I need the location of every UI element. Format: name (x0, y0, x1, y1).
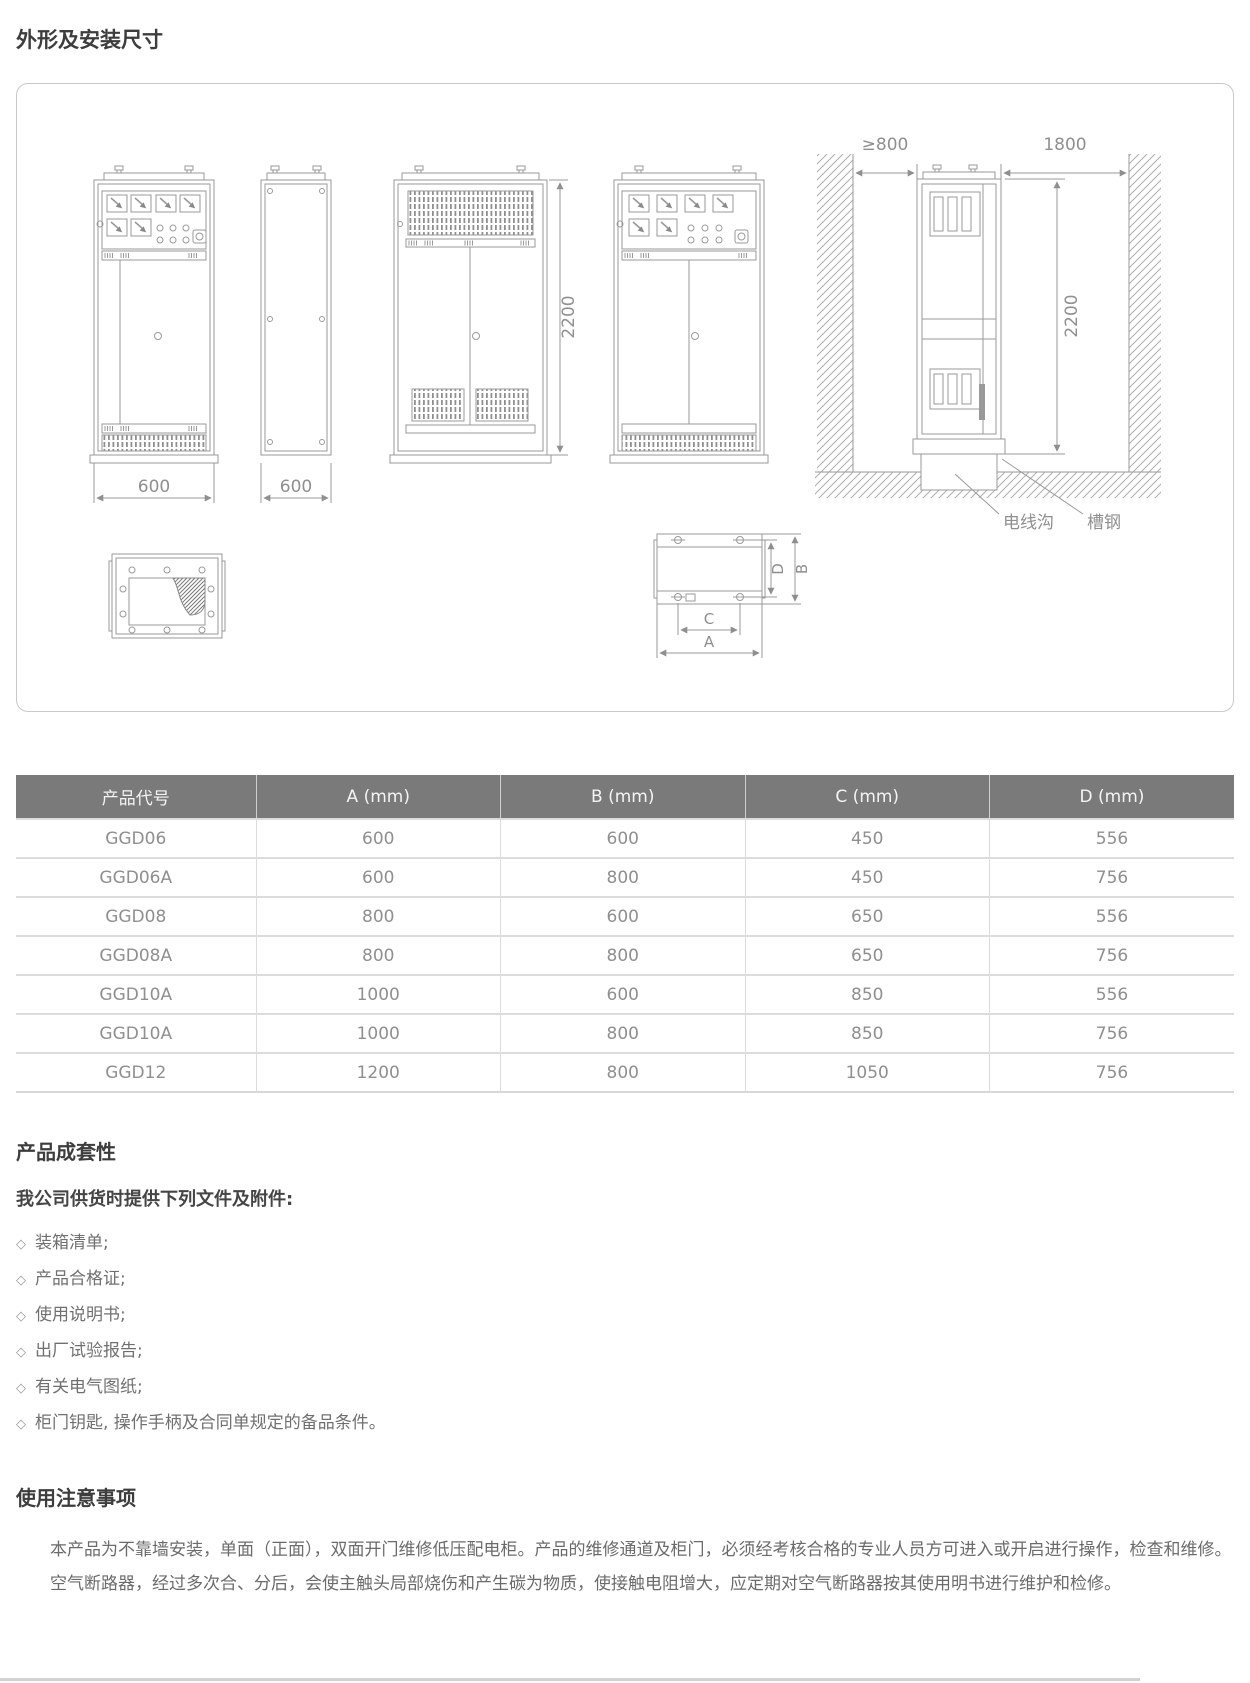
cabinet-front-view (90, 166, 218, 503)
left-wall-hatch (817, 154, 853, 472)
door-handle (473, 333, 480, 340)
table-cell: 450 (745, 858, 990, 897)
table-cell: GGD06A (16, 858, 256, 897)
list-item-text: 柜门钥匙, 操作手柄及合同单规定的备品条件。 (35, 1413, 386, 1433)
list-item: ◇产品合格证; (16, 1261, 1234, 1297)
dim-label-side-depth: 600 (280, 477, 312, 497)
label-channel-steel: 槽钢 (1087, 513, 1121, 533)
table-cell: 800 (256, 936, 501, 975)
table-header-row: 产品代号 A (mm) B (mm) C (mm) D (mm) (16, 775, 1234, 819)
dim-label-rear-clearance: 1800 (1043, 135, 1086, 155)
table-cell: 650 (745, 936, 990, 975)
table-cell: 800 (501, 1053, 746, 1092)
diamond-bullet-icon: ◇ (16, 1417, 26, 1432)
list-item: ◇有关电气图纸; (16, 1369, 1234, 1405)
table-cell: GGD10A (16, 975, 256, 1014)
table-cell: 1200 (256, 1053, 501, 1092)
dim-label-c: C (704, 610, 714, 628)
note-paragraph: 空气断路器，经过多次合、分后，会使主触头局部烧伤和产生碳为物质，使接触电阻增大，… (16, 1567, 1234, 1601)
note-paragraph: 本产品为不靠墙安装，单面（正面），双面开门维修低压配电柜。产品的维修通道及柜门，… (16, 1533, 1234, 1567)
table-cell: 800 (256, 897, 501, 936)
dim-label-b: B (793, 564, 811, 574)
top-view (109, 554, 225, 638)
usage-notes-section-title: 使用注意事项 (16, 1485, 1234, 1511)
diamond-bullet-icon: ◇ (16, 1381, 26, 1396)
spec-table: 产品代号 A (mm) B (mm) C (mm) D (mm) GGD0660… (16, 775, 1234, 1093)
dimension-drawing-panel: 600 600 2200 ≥800 1800 2200 电线沟 槽钢 D B C… (16, 83, 1234, 712)
list-item-text: 出厂试验报告; (35, 1341, 143, 1361)
table-row: GGD08A800800650756 (16, 936, 1234, 975)
diamond-bullet-icon: ◇ (16, 1237, 26, 1252)
table-cell: 1000 (256, 975, 501, 1014)
table-cell: GGD08 (16, 897, 256, 936)
table-cell: 450 (745, 819, 990, 858)
table-cell: 800 (501, 1014, 746, 1053)
table-cell: 600 (256, 819, 501, 858)
diamond-bullet-icon: ◇ (16, 1273, 26, 1288)
page-title: 外形及安装尺寸 (16, 28, 1234, 52)
cabinet-front-view-2 (610, 166, 768, 463)
table-cell: 800 (501, 936, 746, 975)
dim-label-d: D (769, 563, 787, 575)
table-cell: 556 (990, 897, 1235, 936)
right-wall-hatch (1129, 154, 1161, 472)
bottom-divider (0, 1678, 1140, 1681)
list-item-text: 产品合格证; (35, 1269, 126, 1289)
table-cell: 850 (745, 1014, 990, 1053)
cabinet-double-door-view (390, 166, 568, 463)
list-item: ◇装箱清单; (16, 1225, 1234, 1261)
page: 外形及安装尺寸 (0, 0, 1250, 1683)
table-cell: 756 (990, 858, 1235, 897)
cable-trench-pit (921, 454, 997, 490)
table-row: GGD06600600450556 (16, 819, 1234, 858)
table-row: GGD08800600650556 (16, 897, 1234, 936)
col-header-c: C (mm) (745, 775, 990, 819)
list-item: ◇出厂试验报告; (16, 1333, 1234, 1369)
dim-label-front-width: 600 (138, 477, 170, 497)
list-item: ◇使用说明书; (16, 1297, 1234, 1333)
dim-label-a: A (704, 633, 715, 651)
dim-label-cabinet-height: 2200 (559, 295, 579, 338)
table-cell: 756 (990, 936, 1235, 975)
list-item: ◇柜门钥匙, 操作手柄及合同单规定的备品条件。 (16, 1405, 1234, 1441)
notes-paragraphs: 本产品为不靠墙安装，单面（正面），双面开门维修低压配电柜。产品的维修通道及柜门，… (16, 1533, 1234, 1601)
table-row: GGD06A600800450756 (16, 858, 1234, 897)
table-cell: 800 (501, 858, 746, 897)
col-header-d: D (mm) (990, 775, 1235, 819)
table-cell: 850 (745, 975, 990, 1014)
spec-table-body: GGD06600600450556GGD06A600800450756GGD08… (16, 819, 1234, 1092)
door-handle (155, 333, 162, 340)
table-cell: 556 (990, 975, 1235, 1014)
table-row: GGD1212008001050756 (16, 1053, 1234, 1092)
completeness-section-title: 产品成套性 (16, 1139, 1234, 1165)
list-item-text: 有关电气图纸; (35, 1377, 143, 1397)
table-cell: 1000 (256, 1014, 501, 1053)
table-cell: GGD08A (16, 936, 256, 975)
supply-list: ◇装箱清单;◇产品合格证;◇使用说明书;◇出厂试验报告;◇有关电气图纸;◇柜门钥… (16, 1225, 1234, 1441)
dim-label-wall-clearance: ≥800 (862, 135, 909, 155)
table-cell: 756 (990, 1053, 1235, 1092)
table-row: GGD10A1000600850556 (16, 975, 1234, 1014)
diamond-bullet-icon: ◇ (16, 1309, 26, 1324)
door-handle (692, 333, 699, 340)
table-cell: 600 (501, 897, 746, 936)
cutout-hatch (173, 578, 205, 615)
supply-subtitle: 我公司供货时提供下列文件及附件: (16, 1189, 1234, 1211)
table-cell: 600 (501, 975, 746, 1014)
dim-label-install-height: 2200 (1062, 294, 1082, 337)
table-cell: 650 (745, 897, 990, 936)
col-header-a: A (mm) (256, 775, 501, 819)
table-cell: 1050 (745, 1053, 990, 1092)
technical-drawing: 600 600 2200 ≥800 1800 2200 电线沟 槽钢 D B C… (17, 84, 1234, 712)
table-cell: 600 (501, 819, 746, 858)
col-header-product-code: 产品代号 (16, 775, 256, 819)
table-row: GGD10A1000800850756 (16, 1014, 1234, 1053)
table-cell: GGD12 (16, 1053, 256, 1092)
table-cell: 556 (990, 819, 1235, 858)
list-item-text: 使用说明书; (35, 1305, 126, 1325)
diamond-bullet-icon: ◇ (16, 1345, 26, 1360)
col-header-b: B (mm) (501, 775, 746, 819)
table-cell: 600 (256, 858, 501, 897)
installation-diagram (815, 154, 1161, 514)
bottom-view (654, 534, 801, 658)
label-cable-trench: 电线沟 (1003, 513, 1054, 533)
table-cell: 756 (990, 1014, 1235, 1053)
table-cell: GGD06 (16, 819, 256, 858)
list-item-text: 装箱清单; (35, 1233, 109, 1253)
cabinet-side-view (261, 166, 331, 503)
table-cell: GGD10A (16, 1014, 256, 1053)
